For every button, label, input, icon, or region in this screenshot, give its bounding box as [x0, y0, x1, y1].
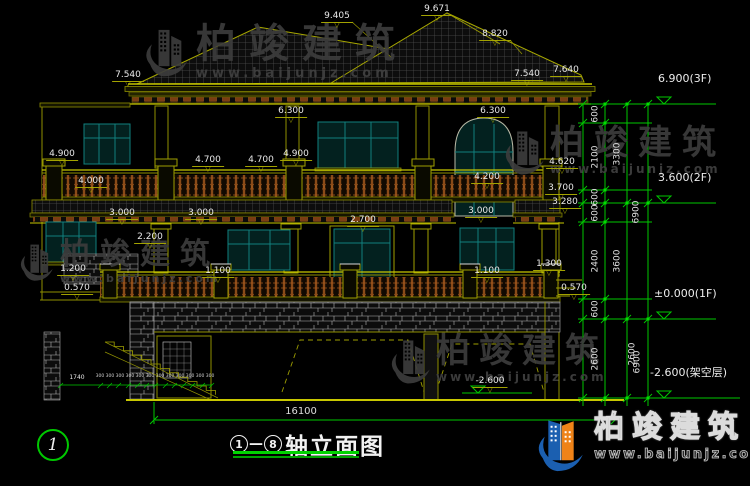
brand-logo-url: www.baijunjz.com — [594, 447, 750, 462]
elevation-marker-label: ±0.000(1F) — [654, 288, 717, 299]
dim-label: 6.300▽ — [477, 107, 509, 122]
vertical-dim-label: 600 — [592, 188, 601, 205]
dim-label: 4.000▽ — [75, 177, 107, 192]
dim-label: 1.200▽ — [57, 265, 89, 280]
vertical-dim-label: 2400 — [592, 250, 601, 273]
vertical-dim-label: 6900 — [634, 351, 643, 374]
dim-label: 4.700▽ — [245, 156, 277, 171]
dim-label: 4.900▽ — [280, 150, 312, 165]
brand-logo-text: 柏竣建筑 — [594, 412, 750, 444]
cad-elevation-drawing-canvas: 柏竣建筑 www.baijunjz.com 柏竣建筑 www.baijunjz.… — [0, 0, 750, 486]
dim-label: 3.000▽ — [185, 209, 217, 224]
dim-label: 9.671▽ — [421, 5, 453, 20]
axis-range-dash: — — [249, 436, 263, 452]
dim-label: 0.570▽ — [558, 284, 590, 299]
dim-label: 300 300 300 300 300 300 300 300 300 300 … — [96, 375, 215, 380]
dim-label: 2.700▽ — [347, 216, 379, 231]
dim-label: 1.100▽ — [202, 267, 234, 282]
dim-label: 1.300▽ — [533, 260, 565, 275]
dim-label: 0.570▽ — [61, 284, 93, 299]
elevation-marker-label: 6.900(3F) — [658, 73, 711, 84]
dim-label: 9.405▽ — [321, 12, 353, 27]
dim-label: 16100 — [285, 407, 317, 417]
title-underline-thick — [233, 451, 359, 454]
dim-label: 3.280▽ — [549, 198, 581, 213]
dim-label: 4.900▽ — [46, 150, 78, 165]
vertical-dim-label: 2600 — [592, 348, 601, 371]
dim-label: 8.820▽ — [479, 30, 511, 45]
dim-label: 4.200▽ — [471, 173, 503, 188]
dim-label: 7.540▽ — [112, 71, 144, 86]
brand-logo-icon — [532, 412, 590, 474]
dim-label: 3.000▽ — [106, 209, 138, 224]
vertical-dim-label: 600 — [592, 105, 601, 122]
vertical-dim-label: 6900 — [633, 201, 642, 224]
vertical-dim-label: 3300 — [614, 143, 623, 166]
elevation-marker-label: -2.600(架空层) — [650, 367, 727, 378]
dim-label: 4.700▽ — [192, 156, 224, 171]
dim-label: 1.100▽ — [471, 267, 503, 282]
dim-label: 2.200▽ — [134, 233, 166, 248]
dim-label: 7.640▽ — [550, 66, 582, 81]
dim-label: 7.540▽ — [511, 70, 543, 85]
axis-bubble-1: 1 — [37, 429, 69, 461]
vertical-dim-label: 600 — [592, 300, 601, 317]
vertical-dim-label: 2100 — [592, 146, 601, 169]
vertical-dim-label: 600 — [592, 204, 601, 221]
dim-label: 1740 — [69, 375, 84, 381]
dim-label: 4.620▽ — [546, 158, 578, 173]
title-underline-thin — [233, 456, 359, 458]
dim-label: -2.600▽ — [472, 377, 507, 392]
elevation-marker-label: 3.600(2F) — [658, 172, 711, 183]
brand-logo: 柏竣建筑 www.baijunjz.com — [532, 412, 750, 474]
dim-label: 6.300▽ — [275, 107, 307, 122]
dim-label: 3.000▽ — [465, 207, 497, 222]
vertical-dim-label: 3600 — [614, 250, 623, 273]
